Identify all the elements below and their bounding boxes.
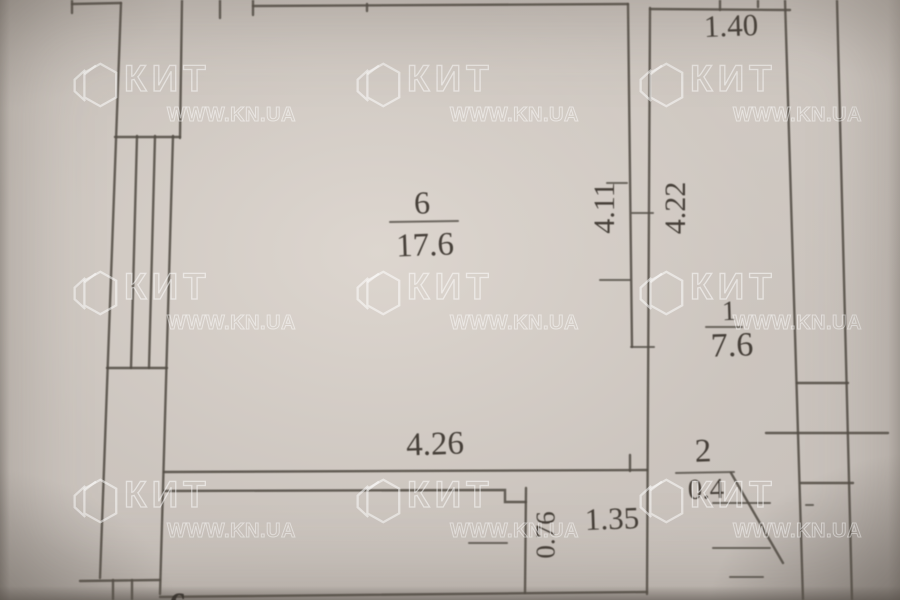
floor-plan-drawing — [0, 0, 900, 600]
dimension-0-76: 0.76 — [531, 511, 562, 558]
room-6-number: 6 — [413, 184, 430, 222]
balcony-hatch-lines — [80, 136, 173, 600]
plan-layer: 6 17.6 1 7.6 2 0.4 1.40 4.11 4.22 4.26 0… — [0, 0, 900, 600]
stair-step-lines — [713, 503, 813, 577]
room-2-area: 0.4 — [687, 473, 724, 507]
cropped-bottom-glyph: 6 — [169, 587, 187, 600]
interior-walls — [115, 0, 888, 597]
room-2-number: 2 — [694, 433, 712, 471]
room-6-area: 17.6 — [395, 227, 454, 266]
dimension-4-26: 4.26 — [405, 426, 464, 465]
room-1-number: 1 — [721, 296, 736, 328]
dimension-4-11: 4.11 — [588, 182, 622, 233]
dimension-1-40: 1.40 — [703, 7, 758, 45]
door-swing-line — [731, 473, 783, 563]
floor-plan-photo: 6 17.6 1 7.6 2 0.4 1.40 4.11 4.22 4.26 0… — [0, 0, 900, 600]
room-1-area: 7.6 — [710, 326, 754, 365]
dimension-1-35: 1.35 — [584, 500, 639, 538]
dimension-4-22: 4.22 — [659, 182, 693, 235]
